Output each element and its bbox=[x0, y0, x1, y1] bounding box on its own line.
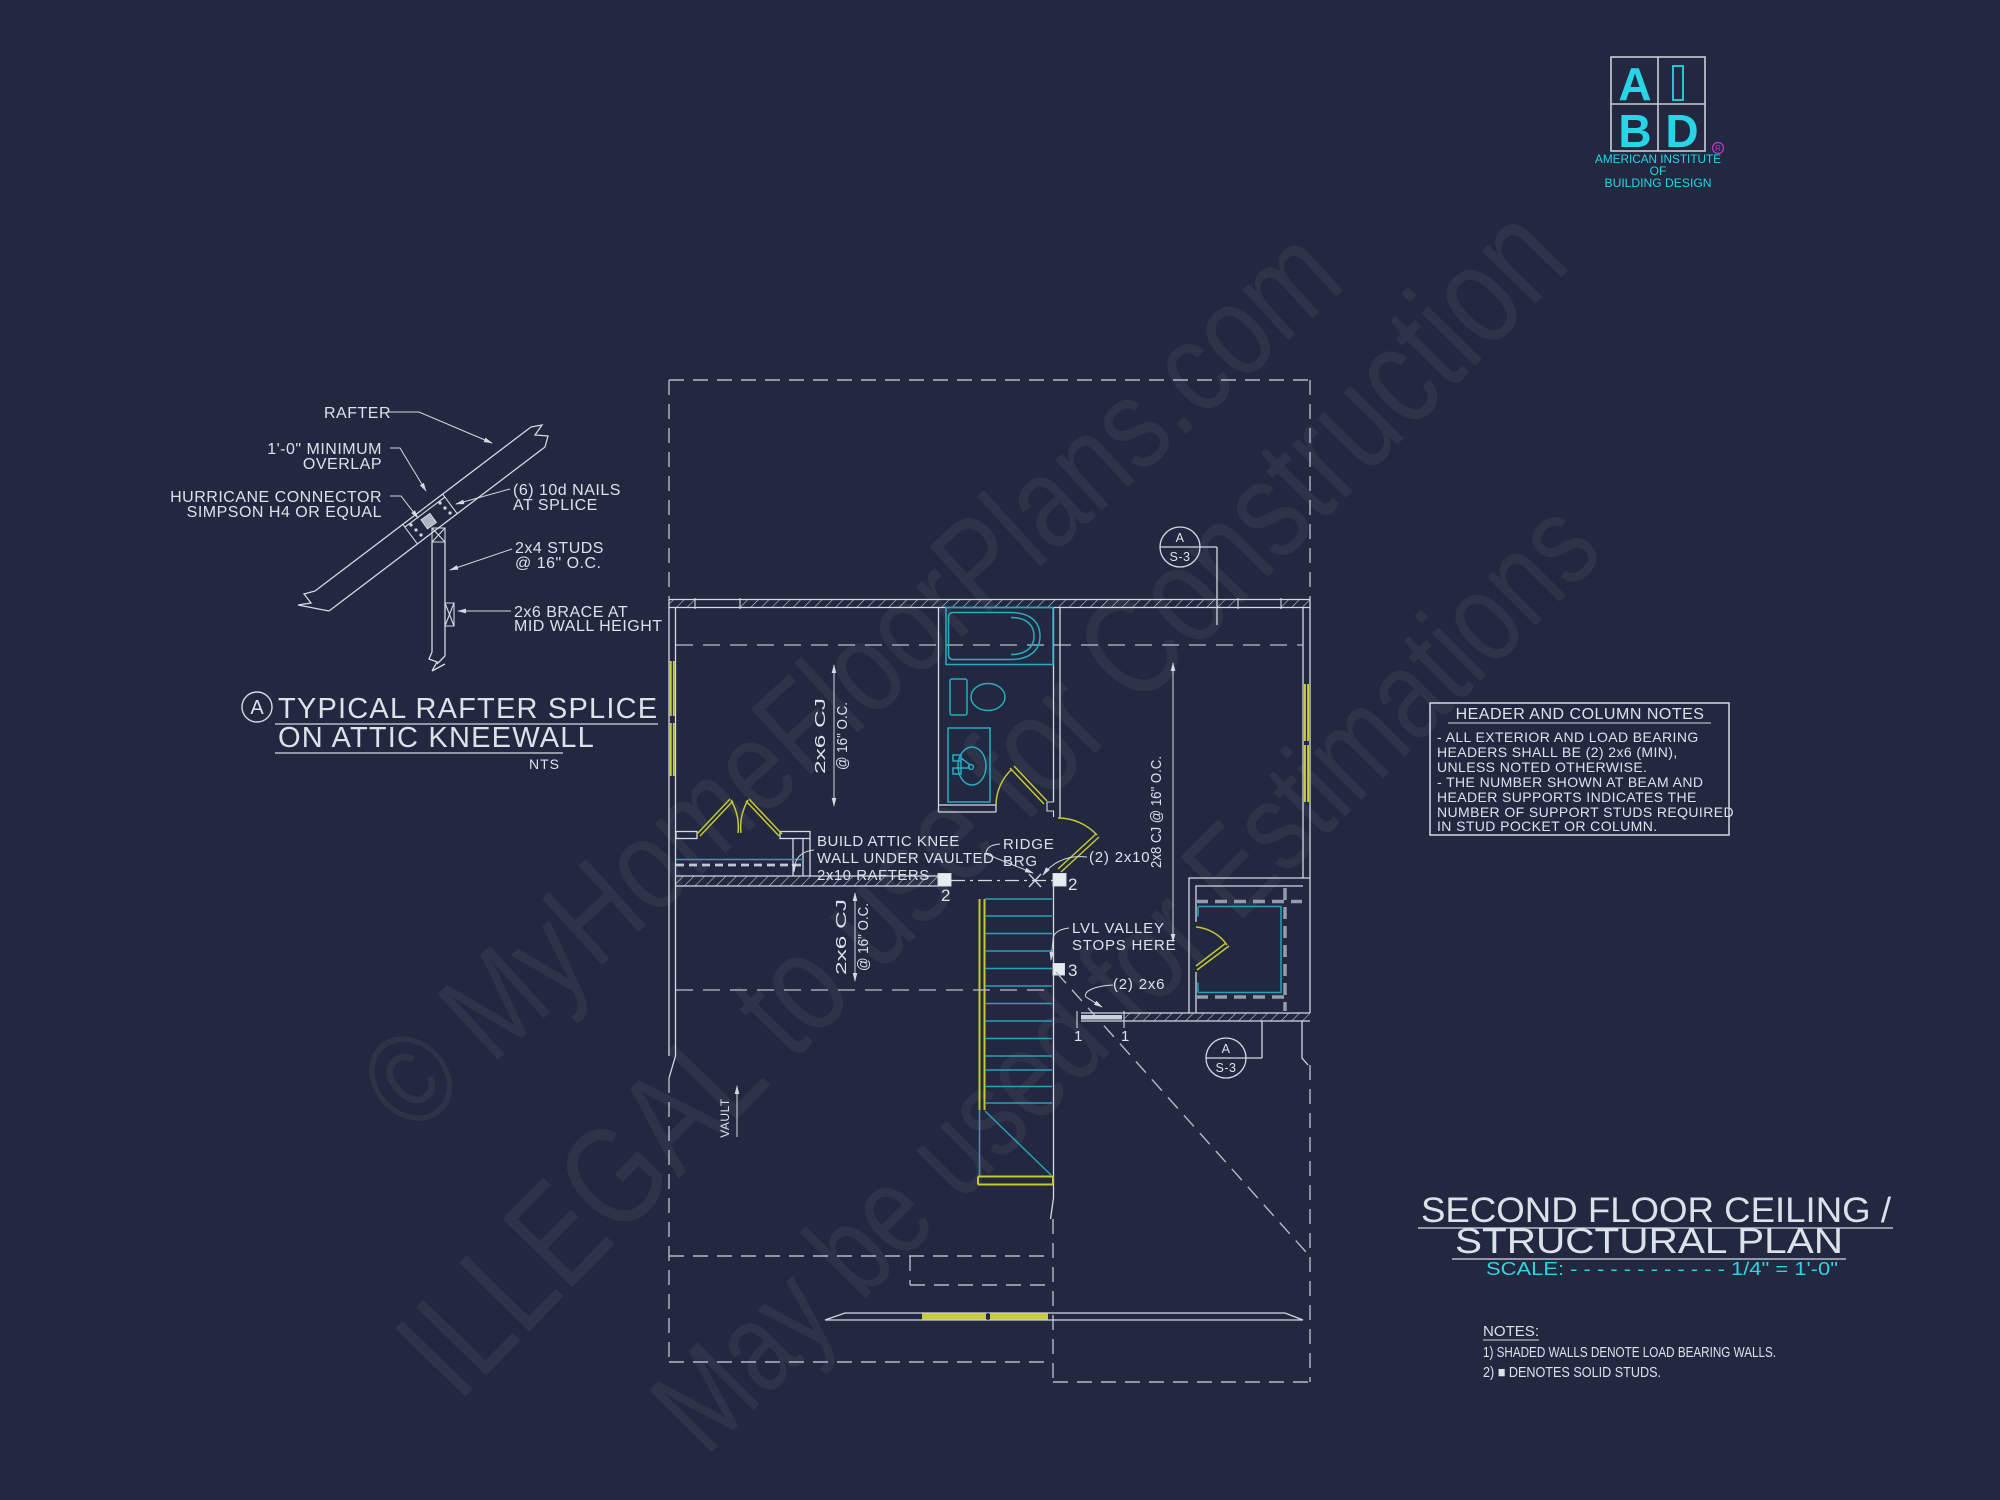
svg-text:S-3: S-3 bbox=[1170, 550, 1191, 564]
svg-text:A: A bbox=[1222, 1042, 1231, 1056]
svg-text:(2) 2x10: (2) 2x10 bbox=[1089, 849, 1150, 866]
svg-text:WALL UNDER VAULTED: WALL UNDER VAULTED bbox=[817, 850, 994, 867]
svg-text:2x6 CJ: 2x6 CJ bbox=[812, 698, 829, 774]
svg-text:LVL VALLEY: LVL VALLEY bbox=[1072, 920, 1165, 937]
svg-text:2: 2 bbox=[1068, 875, 1077, 894]
svg-text:STOPS HERE: STOPS HERE bbox=[1072, 937, 1176, 954]
svg-text:A: A bbox=[1618, 58, 1651, 110]
svg-text:BUILD ATTIC KNEE: BUILD ATTIC KNEE bbox=[817, 833, 960, 850]
svg-text:NOTES:: NOTES: bbox=[1483, 1323, 1539, 1340]
svg-text:NTS: NTS bbox=[529, 756, 560, 772]
svg-text:2: 2 bbox=[941, 886, 950, 905]
svg-text:2x10 RAFTERS: 2x10 RAFTERS bbox=[817, 867, 930, 884]
svg-text:@ 16" O.C.: @ 16" O.C. bbox=[855, 903, 872, 971]
svg-text:- THE NUMBER SHOWN AT BEAM AND: - THE NUMBER SHOWN AT BEAM AND bbox=[1437, 774, 1703, 790]
svg-text:A: A bbox=[1176, 531, 1185, 545]
svg-text:2x8 CJ @ 16" O.C.: 2x8 CJ @ 16" O.C. bbox=[1148, 756, 1165, 868]
svg-text:IN STUD POCKET OR COLUMN.: IN STUD POCKET OR COLUMN. bbox=[1437, 818, 1658, 834]
svg-text:- ALL EXTERIOR AND LOAD BEARIN: - ALL EXTERIOR AND LOAD BEARING bbox=[1437, 729, 1699, 745]
svg-text:ON ATTIC KNEEWALL: ON ATTIC KNEEWALL bbox=[278, 722, 595, 754]
svg-text:STRUCTURAL PLAN: STRUCTURAL PLAN bbox=[1455, 1222, 1843, 1261]
svg-text:A: A bbox=[250, 697, 264, 719]
svg-text:B: B bbox=[1618, 105, 1651, 157]
svg-text:HEADER AND COLUMN NOTES: HEADER AND COLUMN NOTES bbox=[1456, 706, 1705, 723]
svg-text:1) SHADED WALLS DENOTE LOAD BE: 1) SHADED WALLS DENOTE LOAD BEARING WALL… bbox=[1483, 1344, 1776, 1361]
svg-text:D: D bbox=[1665, 105, 1698, 157]
svg-text:3: 3 bbox=[1068, 961, 1077, 980]
svg-text:@ 16" O.C.: @ 16" O.C. bbox=[515, 555, 602, 572]
svg-text:BUILDING DESIGN: BUILDING DESIGN bbox=[1605, 176, 1712, 190]
svg-text:AT SPLICE: AT SPLICE bbox=[513, 497, 598, 514]
svg-text:1: 1 bbox=[1074, 1028, 1082, 1045]
svg-text:@ 16" O.C.: @ 16" O.C. bbox=[834, 702, 851, 770]
svg-text:RAFTER: RAFTER bbox=[324, 405, 391, 422]
svg-text:2) ■ DENOTES SOLID STUDS.: 2) ■ DENOTES SOLID STUDS. bbox=[1483, 1364, 1661, 1381]
svg-text:HEADERS SHALL BE (2) 2x6 (MIN): HEADERS SHALL BE (2) 2x6 (MIN), bbox=[1437, 744, 1678, 760]
svg-text:2x6 CJ: 2x6 CJ bbox=[833, 899, 850, 975]
svg-text:RIDGE: RIDGE bbox=[1003, 836, 1055, 853]
svg-text:MID WALL HEIGHT: MID WALL HEIGHT bbox=[514, 618, 663, 635]
svg-text:UNLESS NOTED OTHERWISE.: UNLESS NOTED OTHERWISE. bbox=[1437, 759, 1647, 775]
svg-text:OVERLAP: OVERLAP bbox=[303, 456, 382, 473]
svg-text:SIMPSON H4 OR EQUAL: SIMPSON H4 OR EQUAL bbox=[187, 504, 382, 521]
svg-text:(2) 2x6: (2) 2x6 bbox=[1113, 976, 1165, 993]
svg-text:SCALE: - - - - - - - - - - - -: SCALE: - - - - - - - - - - - - 1/4" = 1'… bbox=[1486, 1259, 1838, 1279]
svg-text:1: 1 bbox=[1121, 1028, 1129, 1045]
svg-text:HEADER SUPPORTS INDICATES THE: HEADER SUPPORTS INDICATES THE bbox=[1437, 789, 1697, 805]
svg-text:TYPICAL RAFTER SPLICE: TYPICAL RAFTER SPLICE bbox=[278, 693, 658, 725]
svg-text:S-3: S-3 bbox=[1216, 1061, 1237, 1075]
svg-text:VAULT: VAULT bbox=[718, 1098, 732, 1138]
